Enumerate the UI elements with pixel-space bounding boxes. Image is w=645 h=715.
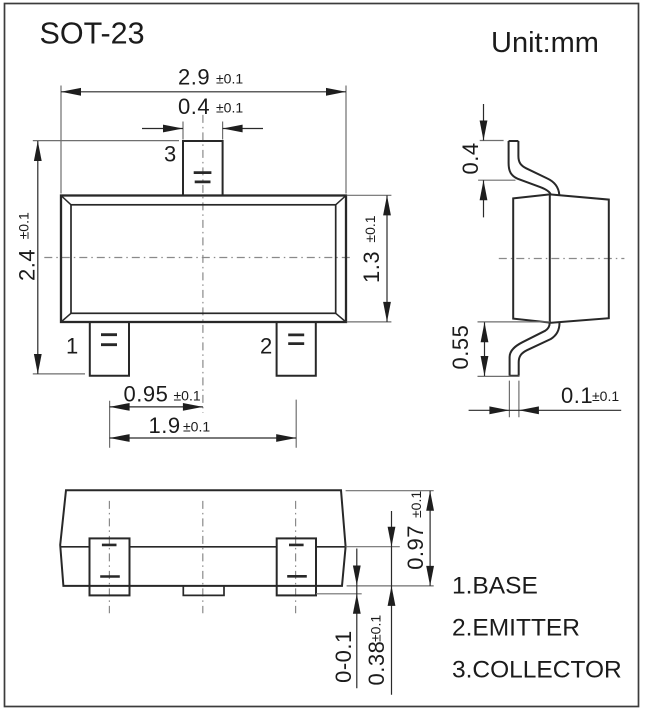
svg-text:±0.1: ±0.1 (183, 419, 210, 435)
svg-text:1.9: 1.9 (149, 413, 181, 438)
svg-text:0.55: 0.55 (448, 325, 473, 370)
svg-text:0.4: 0.4 (458, 142, 483, 174)
svg-text:2: 2 (260, 333, 272, 358)
svg-text:0.4: 0.4 (178, 94, 210, 119)
svg-text:±0.1: ±0.1 (368, 615, 384, 642)
svg-text:±0.1: ±0.1 (592, 388, 619, 404)
svg-text:0.97: 0.97 (403, 525, 428, 570)
svg-text:Unit:mm: Unit:mm (491, 27, 599, 59)
svg-text:0.1: 0.1 (561, 383, 593, 408)
svg-text:1.3: 1.3 (359, 251, 384, 283)
svg-text:2.9: 2.9 (178, 65, 210, 90)
svg-text:±0.1: ±0.1 (216, 71, 243, 87)
svg-text:±0.1: ±0.1 (174, 388, 201, 404)
svg-text:0-0.1: 0-0.1 (331, 630, 356, 683)
svg-text:±0.1: ±0.1 (216, 100, 243, 116)
svg-text:1.BASE: 1.BASE (452, 573, 538, 600)
svg-text:1: 1 (66, 333, 78, 358)
svg-text:±0.1: ±0.1 (408, 491, 424, 518)
svg-text:2.EMITTER: 2.EMITTER (452, 615, 580, 642)
svg-text:±0.1: ±0.1 (362, 215, 378, 242)
svg-text:3.COLLECTOR: 3.COLLECTOR (452, 656, 622, 683)
svg-text:2.4: 2.4 (14, 249, 39, 281)
svg-text:0.95: 0.95 (124, 382, 169, 407)
svg-text:±0.1: ±0.1 (16, 212, 32, 239)
svg-text:3: 3 (164, 142, 176, 167)
svg-text:0.38: 0.38 (364, 641, 389, 686)
svg-text:SOT-23: SOT-23 (40, 17, 145, 51)
